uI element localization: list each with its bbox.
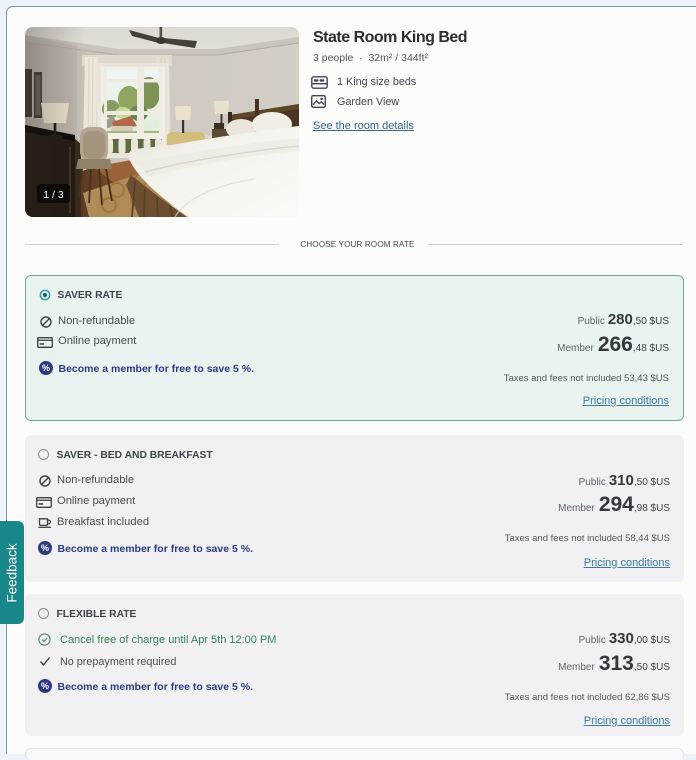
svg-text:%: % — [42, 363, 50, 373]
svg-text:%: % — [41, 681, 49, 691]
svg-text:1 / 3: 1 / 3 — [43, 189, 64, 201]
svg-text:%: % — [41, 543, 49, 553]
